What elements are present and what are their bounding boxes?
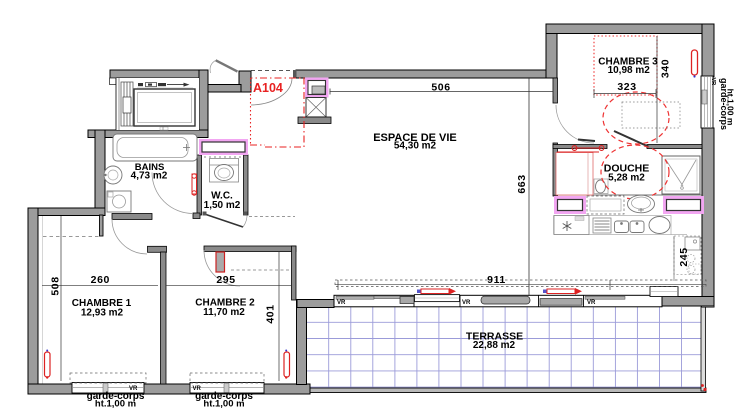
- svg-text:295: 295: [216, 274, 235, 286]
- svg-text:508: 508: [50, 276, 62, 295]
- svg-text:340: 340: [660, 59, 672, 78]
- svg-text:11,70 m2: 11,70 m2: [203, 307, 245, 318]
- svg-text:1,50 m2: 1,50 m2: [204, 200, 241, 211]
- svg-text:323: 323: [617, 81, 636, 93]
- svg-text:911: 911: [487, 274, 506, 286]
- svg-text:54,30 m2: 54,30 m2: [394, 141, 437, 152]
- svg-text:5,28 m2: 5,28 m2: [608, 173, 645, 184]
- svg-text:245: 245: [678, 247, 690, 266]
- svg-text:663: 663: [516, 174, 528, 193]
- svg-text:VR: VR: [462, 300, 471, 306]
- svg-text:22,88 m2: 22,88 m2: [473, 340, 516, 351]
- svg-text:ht.1,00 m: ht.1,00 m: [203, 399, 244, 410]
- svg-text:VR: VR: [710, 78, 716, 86]
- svg-text:VR: VR: [587, 300, 596, 306]
- svg-text:A104: A104: [253, 81, 283, 95]
- svg-text:10,98 m2: 10,98 m2: [608, 65, 651, 76]
- svg-text:401: 401: [265, 304, 277, 323]
- svg-text:12,93 m2: 12,93 m2: [81, 307, 124, 318]
- svg-text:4,73 m2: 4,73 m2: [131, 171, 168, 182]
- svg-text:506: 506: [431, 82, 450, 94]
- svg-text:ht.1,00 m: ht.1,00 m: [726, 89, 736, 126]
- svg-text:260: 260: [91, 274, 110, 286]
- svg-text:ht.1,00 m: ht.1,00 m: [95, 399, 136, 410]
- svg-text:VR: VR: [337, 300, 346, 306]
